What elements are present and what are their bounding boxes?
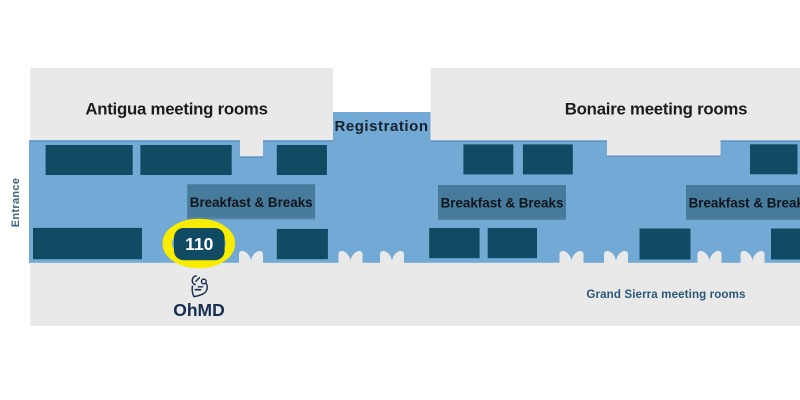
svg-text:Grand Sierra meeting rooms: Grand Sierra meeting rooms: [586, 288, 745, 301]
svg-text:Breakfast & Breaks: Breakfast & Breaks: [689, 195, 800, 210]
svg-text:Antigua meeting rooms: Antigua meeting rooms: [85, 100, 267, 119]
svg-text:110: 110: [185, 234, 213, 254]
svg-text:Entrance: Entrance: [10, 178, 22, 227]
svg-text:Registration: Registration: [334, 118, 428, 135]
svg-text:OhMD: OhMD: [173, 300, 225, 320]
svg-text:Breakfast & Breaks: Breakfast & Breaks: [441, 195, 564, 210]
svg-text:Breakfast & Breaks: Breakfast & Breaks: [190, 195, 313, 210]
svg-text:Bonaire meeting rooms: Bonaire meeting rooms: [565, 100, 747, 119]
